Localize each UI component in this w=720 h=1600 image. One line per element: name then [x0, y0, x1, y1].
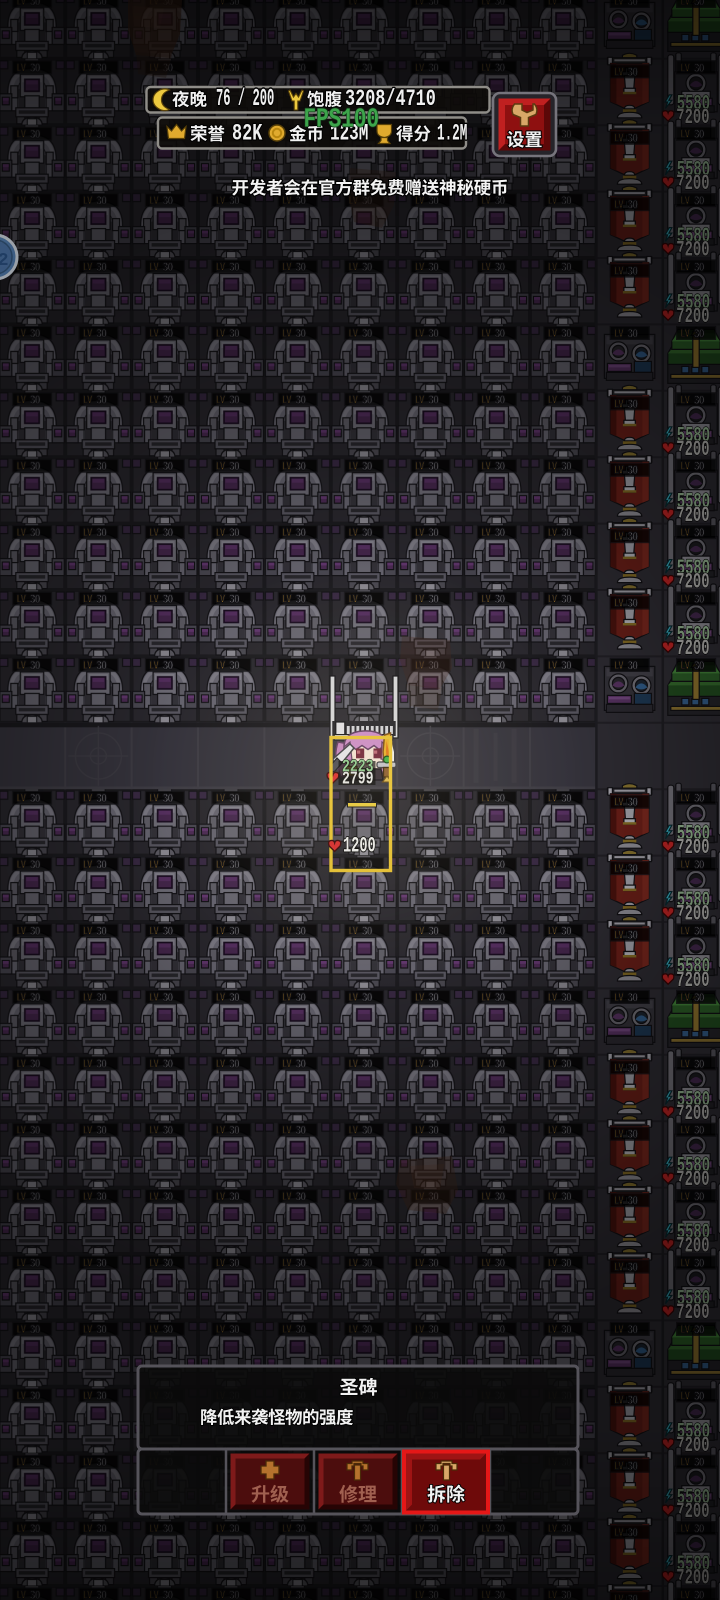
svg-text:1.2M: 1.2M	[437, 120, 467, 147]
svg-text:FPS100: FPS100	[304, 105, 380, 135]
svg-text:82K: 82K	[232, 121, 263, 147]
svg-text:76 / 200: 76 / 200	[216, 85, 274, 113]
svg-text:22: 22	[0, 251, 8, 271]
